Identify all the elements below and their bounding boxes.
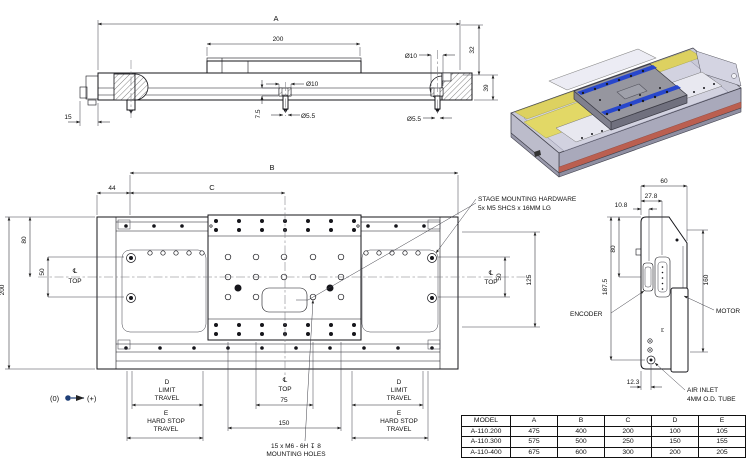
origin-dot [65,395,71,401]
dim-c-label: C [209,183,215,192]
table-header-b: B [558,416,605,427]
table-header-row: MODEL A B C D E [462,416,746,427]
table-header-a: A [511,416,558,427]
body-marking: PI [660,328,665,332]
table-row: A-110.200 475 400 200 100 105 [462,426,746,437]
motor-connector [655,257,670,297]
dim-44-label: 44 [108,185,116,192]
side-view: A 200 15 Ø10 7.5 Ø5.5 [64,14,498,126]
centerline-symbol-left: ℄ [73,268,78,275]
dim-12-3-label: 12.3 [627,379,640,386]
travel-d-left: D [165,379,170,386]
origin-plus-label: (+) [87,394,97,403]
dim-a-label: A [273,14,278,23]
travel-hardstop-right: HARD STOP [380,418,418,425]
travel-e-right: E [397,410,402,417]
model-cell: A-110.300 [462,437,511,448]
travel-e-left: E [164,410,169,417]
motor-label: MOTOR [716,308,740,315]
centerline-symbol-right: ℄ [489,270,494,277]
travel-limit-left: LIMIT [159,387,176,394]
air-inlet-label-2: 4MM O.D. TUBE [687,396,736,403]
dim-10-8-label: 10.8 [615,202,628,209]
dim-dia10-mid-label: Ø10 [306,81,319,88]
table-row: A-110.300 575 500 250 150 155 [462,437,746,448]
table-header-c: C [605,416,652,427]
encoder-label: ENCODER [570,311,603,318]
table-header-d: D [652,416,699,427]
model-spec-table: MODEL A B C D E A-110.200 475 400 200 10… [461,415,746,458]
value-cell: 475 [511,426,558,437]
dim-dia10-right-label: Ø10 [405,53,418,60]
callout-holes-line1: 15 x M6 - 6H ↧ 8 [271,443,321,450]
value-cell: 150 [652,437,699,448]
table-header-e: E [699,416,746,427]
top-label-left: TOP [68,278,81,285]
value-cell: 100 [652,426,699,437]
travel-limit-right: LIMIT [391,387,408,394]
travel-d-right: D [397,379,402,386]
dim-15-label: 15 [64,114,72,121]
centerline-symbol-bottom: ℄ [283,377,288,384]
motor-housing [671,288,688,372]
dim-50-left-label: 50 [39,268,46,276]
callout-hardware-line1: STAGE MOUNTING HARDWARE [478,196,577,203]
dim-75-label: 75 [280,397,288,404]
value-cell: 575 [511,437,558,448]
value-cell: 500 [558,437,605,448]
dim-160-label: 160 [703,274,710,285]
value-cell: 675 [511,447,558,458]
dim-150-label: 150 [279,420,290,427]
end-view: PI 60 27.8 10.8 80 187.5 [570,178,740,403]
value-cell: 250 [605,437,652,448]
dim-80-label: 80 [21,236,28,244]
travel-travel-left-2: TRAVEL [154,426,179,433]
table-header-model: MODEL [462,416,511,427]
model-cell: A-110.200 [462,426,511,437]
value-cell: 105 [699,426,746,437]
top-view-carriage [208,215,361,340]
table-row: A-110-400 675 600 300 200 205 [462,447,746,458]
dim-60-label: 60 [660,178,668,185]
iso-end-hole [732,74,737,79]
value-cell: 600 [558,447,605,458]
dim-200-label: 200 [273,36,284,43]
value-cell: 155 [699,437,746,448]
travel-travel-right-2: TRAVEL [387,426,412,433]
value-cell: 205 [699,447,746,458]
dim-39-label: 39 [483,84,490,92]
value-cell: 300 [605,447,652,458]
value-cell: 200 [652,447,699,458]
dim-7-5-label: 7.5 [255,109,262,118]
origin-note: (0) (+) [50,394,97,403]
value-cell: 400 [558,426,605,437]
dim-27-8-label: 27.8 [645,193,658,200]
iso-view [511,48,741,177]
travel-hardstop-left: HARD STOP [147,418,185,425]
travel-travel-right-1: TRAVEL [387,395,412,402]
dim-dia55-right-label: Ø5.5 [407,116,421,123]
technical-drawing-sheet: A 200 15 Ø10 7.5 Ø5.5 [0,0,750,461]
air-inlet-label-1: AIR INLET [687,387,718,394]
dim-125-label: 125 [526,274,533,285]
travel-travel-left-1: TRAVEL [155,395,180,402]
dim-200-left-label: 200 [0,284,6,295]
model-cell: A-110-400 [462,447,511,458]
dim-32-label: 32 [469,46,476,54]
dim-dia55-mid-label: Ø5.5 [301,113,315,120]
drawing-svg: A 200 15 Ø10 7.5 Ø5.5 [0,0,750,461]
dim-50-right-label: 50 [496,273,503,281]
dim-b-label: B [269,163,274,172]
top-label-bottom: TOP [278,386,291,393]
value-cell: 200 [605,426,652,437]
dim-187-5-label: 187.5 [602,278,609,295]
origin-zero-label: (0) [50,394,60,403]
top-view: B C 44 200 80 50 ℄ TOP ℄ TOP 50 [0,163,577,458]
callout-holes-line2: MOUNTING HOLES [266,451,326,458]
callout-hardware-line2: 5x M5 SHCS x 16MM LG [478,205,551,212]
